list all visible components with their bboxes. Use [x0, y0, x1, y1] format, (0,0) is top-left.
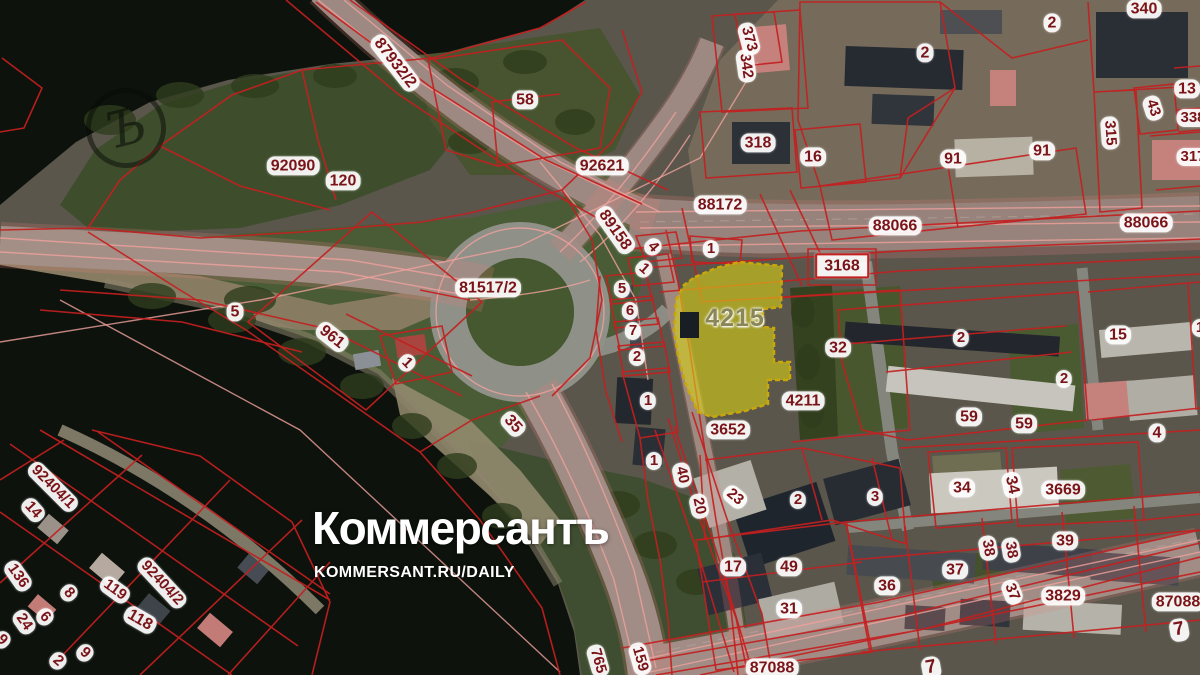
parcel-label-1: 1 — [640, 392, 656, 410]
parcel-label-5: 5 — [614, 280, 630, 298]
parcel-label-88172: 88172 — [694, 195, 747, 214]
kommersant-logo: Коммерсантъ — [312, 501, 608, 555]
parcel-label-15: 15 — [1105, 325, 1131, 344]
parcel-label-58: 58 — [512, 90, 538, 109]
parcel-label-16: 16 — [800, 147, 826, 166]
parcel-label-3669: 3669 — [1041, 480, 1085, 499]
parcel-label-3: 3 — [867, 488, 883, 506]
parcel-label-92621: 92621 — [576, 156, 629, 175]
parcel-label-92090: 92090 — [267, 156, 320, 175]
parcel-label-7: 7 — [1168, 617, 1190, 643]
parcel-label-6: 6 — [622, 302, 638, 320]
parcel-label-2: 2 — [917, 43, 934, 62]
parcel-label-3652: 3652 — [706, 420, 750, 439]
parcel-label-2: 2 — [790, 491, 806, 509]
parcel-label-31: 31 — [776, 599, 802, 618]
parcel-label-2: 2 — [1044, 13, 1061, 32]
parcel-label-91: 91 — [1029, 141, 1055, 160]
parcel-label-1: 1 — [646, 452, 662, 470]
parcel-label-338: 338 — [1176, 109, 1200, 127]
parcel-label-4211: 4211 — [782, 391, 825, 410]
parcel-label-87088: 87088 — [746, 658, 799, 675]
parcel-label-1: 1 — [703, 240, 719, 258]
parcel-label-17: 17 — [720, 557, 746, 576]
parcel-label-2: 2 — [1056, 370, 1072, 388]
parcel-label-3829: 3829 — [1041, 586, 1085, 605]
parcel-label-37: 37 — [942, 560, 968, 579]
parcel-label-88066: 88066 — [1120, 213, 1173, 232]
satellite-map-canvas — [0, 0, 1200, 675]
parcel-label-315: 315 — [1100, 116, 1120, 150]
parcel-label-340: 340 — [1127, 0, 1162, 19]
parcel-label-91: 91 — [940, 149, 966, 168]
parcel-label-81517-2: 81517/2 — [455, 278, 521, 297]
parcel-label-120: 120 — [326, 171, 361, 190]
parcel-label-34: 34 — [949, 478, 975, 497]
parcel-label-318: 318 — [741, 133, 776, 152]
parcel-label-4215: 4215 — [701, 303, 769, 333]
parcel-label-317: 317 — [1176, 148, 1200, 166]
parcel-label-3168: 3168 — [815, 253, 869, 278]
parcel-label-1: 1 — [1192, 319, 1200, 337]
parcel-label-7: 7 — [625, 322, 641, 340]
kommersant-site-url: KOMMERSANT.RU/DAILY — [314, 564, 515, 582]
parcel-label-2: 2 — [629, 348, 645, 366]
parcel-label-5: 5 — [227, 302, 244, 321]
parcel-label-2: 2 — [953, 329, 969, 347]
parcel-label-39: 39 — [1052, 531, 1078, 550]
parcel-label-88066: 88066 — [869, 216, 922, 235]
parcel-label-32: 32 — [825, 338, 851, 357]
monogram-letter: Ъ — [100, 95, 153, 161]
cadastral-map-image: 87932/2589209012092621342373318162234013… — [0, 0, 1200, 675]
parcel-label-13: 13 — [1174, 79, 1200, 98]
parcel-label-36: 36 — [874, 576, 900, 595]
parcel-label-4: 4 — [1149, 423, 1166, 442]
parcel-label-87088: 87088 — [1152, 592, 1200, 611]
parcel-label-59: 59 — [956, 407, 982, 426]
parcel-label-59: 59 — [1011, 414, 1037, 433]
building-in-parcel — [680, 312, 699, 338]
parcel-label-49: 49 — [776, 557, 802, 576]
